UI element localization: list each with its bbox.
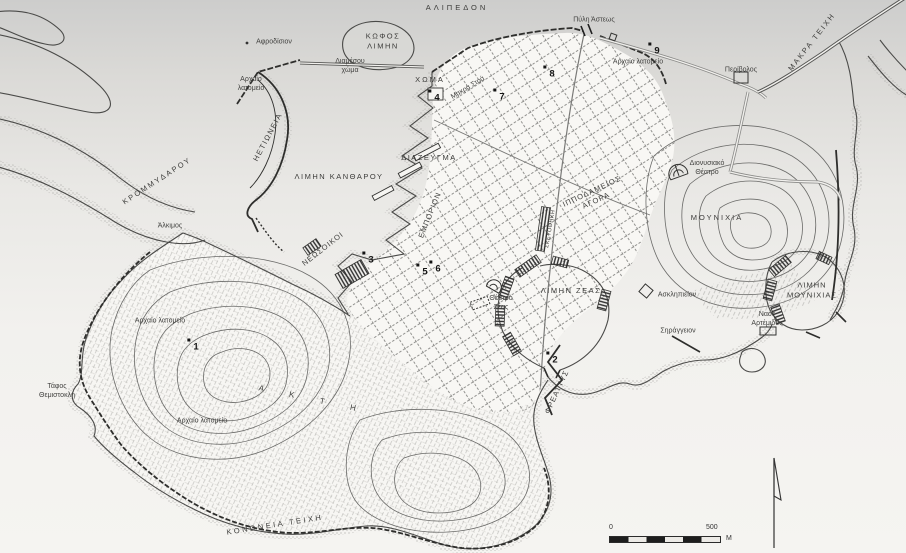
label-perivolos: Περίβολος: [725, 65, 757, 74]
label-dionysiako-theatro: ΔιονυσιακόΘέατρο: [690, 159, 725, 177]
label-afrodision: Αφροδίσιον: [256, 37, 292, 46]
label-alipedon: ΑΛΙΠΕΔΟΝ: [426, 3, 489, 13]
scale-bar: 0 500 M: [606, 524, 738, 548]
label-tafos-themistokli: ΤάφοςΘεμιστοκλή: [39, 382, 75, 400]
site-marker-4: 4: [434, 93, 439, 104]
site-marker-9: 9: [654, 46, 659, 57]
label-syrangeion: Σηράγγειον: [660, 326, 695, 335]
label-mounichia: ΜΟΥΝΙΧΙΑ: [691, 213, 743, 223]
site-marker-6: 6: [435, 264, 440, 275]
label-asklipieion: Ασκληπιείον: [658, 290, 696, 299]
label-choma: ΧΩΜΑ: [415, 75, 445, 85]
label-archaio-latomeio-ne: Αρχαίο λατομείο: [613, 57, 663, 66]
piraeus-map: ΑΛΙΠΕΔΟΝΚΩΦΟΣΛΙΜΗΝΠύλη ΆστεωςΑφροδίσιονΑ…: [0, 0, 906, 553]
label-limen-kantharou: ΛΙΜΗΝ ΚΑΝΘΑΡΟΥ: [295, 172, 384, 182]
label-limen-mounichias: ΛΙΜΗΝΜΟΥΝΙΧΙΑΣ: [787, 280, 837, 300]
site-marker-3: 3: [368, 255, 373, 266]
north-arrow-icon: [758, 448, 798, 553]
label-limen-zeas: ΛΙΜΗΝ ΖΕΑΣ: [541, 286, 601, 296]
site-marker-8: 8: [549, 69, 554, 80]
label-kofos-limen: ΚΩΦΟΣΛΙΜΗΝ: [366, 31, 401, 51]
label-alkimos: Άλκιμος: [158, 221, 183, 230]
label-naos-artemidos: ΝαόςΑρτέμιδος: [751, 310, 782, 328]
label-archaio-latomeio-akti-s: Αρχαίο λατομείο: [177, 416, 227, 425]
scale-unit-label: M: [726, 535, 732, 542]
label-diazeugma: ΔΙΑΖΕΥΓΜΑ: [401, 153, 457, 163]
site-marker-2: 2: [552, 355, 557, 366]
label-theatro-zeas: ΘέατροΖέας: [489, 294, 512, 312]
scale-max-label: 500: [706, 524, 718, 531]
scale-zero-label: 0: [609, 524, 613, 531]
label-diamesou-choma: Διαμέσουχώμα: [335, 57, 364, 75]
label-archaio-latomeio-west: Αρχαίολατομείο: [238, 75, 265, 93]
site-marker-5: 5: [422, 267, 427, 278]
site-marker-7: 7: [499, 92, 504, 103]
label-archaio-latomeio-akti-n: Αρχαίο λατομείο: [135, 316, 185, 325]
label-pyli-asteos: Πύλη Άστεως: [573, 15, 615, 24]
scale-bar-graphic: [609, 536, 721, 543]
site-marker-1: 1: [193, 342, 198, 353]
